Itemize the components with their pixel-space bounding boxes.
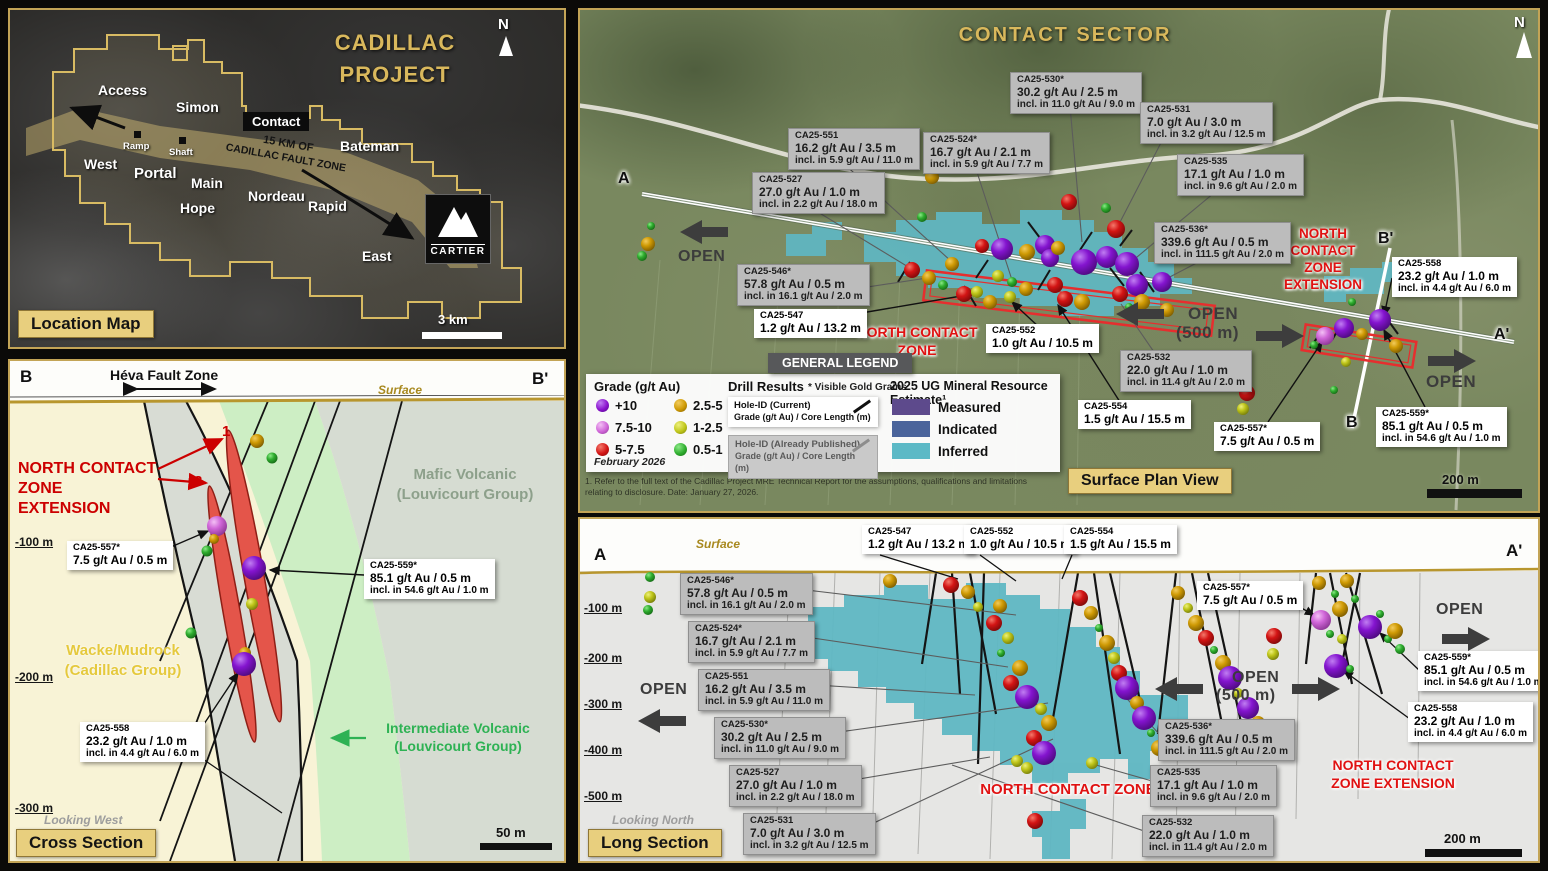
measured-swatch [892,399,930,415]
open-arrow-right [1442,627,1490,651]
grade-label: 7.5-10 [615,420,652,435]
grade-label: +10 [615,398,637,413]
general-legend-panel: Grade (g/t Au) +10 7.5-10 5-7.5 2.5-5 1-… [586,374,1060,472]
plan-scale-bar [1427,489,1522,498]
drill-label-ca25-524: CA25-524*16.7 g/t Au / 2.1 mincl. in 5.9… [923,132,1050,174]
long-label-ca25-557: CA25-557*7.5 g/t Au / 0.5 m [1197,581,1303,610]
long-open-left: OPEN [640,681,687,699]
long-label-ca25-559: CA25-559*85.1 g/t Au / 0.5 mincl. in 54.… [1418,651,1540,691]
location-north-arrow [499,36,513,56]
plan-open-mid1: OPEN [1188,304,1238,324]
cartier-logo-text: CARTIER [431,244,486,257]
open-arrow-right [1428,349,1476,373]
included-interval: incl. in 54.6 g/t Au / 1.0 m [1424,677,1540,688]
long-label-ca25-532: CA25-53222.0 g/t Au / 1.0 mincl. in 11.4… [1142,815,1274,857]
project-title-line1: CADILLAC [310,30,480,56]
open-arrow-mid-right [1292,677,1340,701]
drill-label-ca25-551: CA25-55116.2 g/t Au / 3.5 mincl. in 5.9 … [788,128,920,170]
wacke-line2: (Cadillac Group) [38,661,208,681]
plan-title: CONTACT SECTOR [940,24,1190,47]
drill-label-ca25-546: CA25-546*57.8 g/t Au / 0.5 mincl. in 16.… [737,264,870,306]
grade-swatch [596,399,609,412]
included-interval: incl. in 4.4 g/t Au / 6.0 m [1414,728,1527,739]
grade-interval: 23.2 g/t Au / 1.0 m [86,735,199,748]
grade-item-plus10: +10 [596,398,637,413]
grade-interval: 85.1 g/t Au / 0.5 m [1424,664,1540,677]
lens-number-3: 3 [194,473,202,490]
measured-label: Measured [938,400,1001,415]
long-depth-100: -100 m [584,601,622,615]
grade-interval: 57.8 g/t Au / 0.5 m [744,278,863,291]
grade-item-2-5: 2.5-5 [674,398,723,413]
plan-north-label: N [1514,14,1525,31]
included-interval: incl. in 16.1 g/t Au / 2.0 m [687,600,806,611]
grade-swatch [674,421,687,434]
cross-section-drawing [10,361,564,861]
intermediate-volcanic-label: Intermediate Volcanic (Louvicourt Group) [368,719,548,755]
indicated-label: Indicated [938,422,997,437]
plan-endpoint-b: B [1346,414,1358,432]
drill-label-ca25-531: CA25-5317.0 g/t Au / 3.0 mincl. in 3.2 g… [1140,102,1273,144]
long-label-ca25-527: CA25-52727.0 g/t Au / 1.0 mincl. in 2.2 … [729,765,862,807]
grade-interval: 22.0 g/t Au / 1.0 m [1149,829,1267,842]
sky-band [10,361,564,395]
grade-interval: 339.6 g/t Au / 0.5 m [1165,733,1288,746]
ncze-label-line2: ZONE EXTENSION [18,479,158,519]
plan-endpoint-a: A [618,170,630,188]
surface-plan-panel: CONTACT SECTOR N A A' B' B OPEN OPEN (50… [578,8,1540,513]
mafic-volcanic-label: Mafic Volcanic (Louvicourt Group) [370,465,560,504]
included-interval: incl. in 16.1 g/t Au / 2.0 m [744,291,863,302]
grade-label: 1-2.5 [693,420,723,435]
legend-date: February 2026 [594,456,665,468]
plan-open-mid2: (500 m) [1176,323,1239,343]
included-interval: incl. in 2.2 g/t Au / 18.0 m [736,792,855,803]
indicated-swatch [892,421,930,437]
cross-scale-bar [480,843,552,850]
included-interval: incl. in 4.4 g/t Au / 6.0 m [86,748,199,759]
zone-rapid: Rapid [308,198,347,214]
long-label-ca25-531: CA25-5317.0 g/t Au / 3.0 mincl. in 3.2 g… [743,813,876,855]
intermediate-line2: (Louvicourt Group) [368,737,548,755]
figure-canvas: CADILLAC PROJECT N Access Simon West Ram… [0,0,1548,871]
included-interval: incl. in 11.0 g/t Au / 9.0 m [1017,99,1135,110]
drill-label-ca25-527: CA25-52727.0 g/t Au / 1.0 mincl. in 2.2 … [752,172,885,214]
mafic-volcanic-line1: Mafic Volcanic [370,465,560,485]
zone-access: Access [98,82,147,98]
mafic-volcanic-line2: (Louvicourt Group) [370,485,560,505]
section-endpoint-b: B [20,367,32,387]
long-section-panel: A A' Surface -100 m -200 m -300 m -400 m… [578,517,1540,863]
cross-scale-label: 50 m [496,825,526,840]
long-ncze-line2: ZONE EXTENSION [1318,775,1468,793]
drill-label-ca25-558: CA25-55823.2 g/t Au / 1.0 mincl. in 4.4 … [1392,257,1517,297]
included-interval: incl. in 2.2 g/t Au / 18.0 m [759,199,878,210]
plan-open-left: OPEN [678,248,725,266]
long-open-right: OPEN [1436,601,1483,619]
grade-interval: 27.0 g/t Au / 1.0 m [736,779,855,792]
plan-title-badge: Surface Plan View [1068,468,1232,494]
section-endpoint-b-prime: B' [532,369,548,389]
surface-label: Surface [378,383,422,397]
grade-interval: 7.0 g/t Au / 3.0 m [1147,116,1266,129]
wacke-mudrock-label: Wacke/Mudrock (Cadillac Group) [38,641,208,680]
drill-label-ca25-554: CA25-5541.5 g/t Au / 15.5 m [1078,400,1191,429]
drill-label-ca25-547: CA25-5471.2 g/t Au / 13.2 m [754,309,867,338]
included-interval: incl. in 5.9 g/t Au / 11.0 m [705,696,823,707]
grade-interval: 1.5 g/t Au / 15.5 m [1084,413,1185,426]
zone-simon: Simon [176,99,219,115]
surface-casing-line [10,395,564,397]
long-label-ca25-536: CA25-536*339.6 g/t Au / 0.5 mincl. in 11… [1158,719,1295,761]
grade-interval: 30.2 g/t Au / 2.5 m [721,731,839,744]
included-interval: incl. in 11.4 g/t Au / 2.0 m [1149,842,1267,853]
included-interval: incl. in 111.5 g/t Au / 2.0 m [1165,746,1288,757]
included-interval: incl. in 11.0 g/t Au / 9.0 m [721,744,839,755]
grade-interval: 7.5 g/t Au / 0.5 m [1220,435,1314,448]
depth-100: -100 m [15,535,53,549]
heva-fault-zone-label: Héva Fault Zone [110,367,218,383]
drill-label-ca25-557: CA25-557*7.5 g/t Au / 0.5 m [1214,422,1320,451]
inferred-label: Inferred [938,444,988,459]
included-interval: incl. in 111.5 g/t Au / 2.0 m [1161,249,1284,260]
long-label-ca25-547: CA25-5471.2 g/t Au / 13.2 m [862,525,975,554]
zone-portal: Portal [134,165,177,182]
drill-label-ca25-558-cross: CA25-558 23.2 g/t Au / 1.0 m incl. in 4.… [80,722,205,762]
location-scale-label: 3 km [438,312,468,327]
grade-interval: 1.0 g/t Au / 10.5 m [970,538,1071,551]
cross-section-title-badge: Cross Section [16,829,156,857]
open-arrow-mid-right [1256,324,1304,348]
included-interval: incl. in 11.4 g/t Au / 2.0 m [1127,377,1245,388]
inferred-swatch [892,443,930,459]
grade-item-05-1: 0.5-1 [674,442,723,457]
grade-interval: 339.6 g/t Au / 0.5 m [1161,236,1284,249]
drill-label-ca25-535: CA25-53517.1 g/t Au / 1.0 mincl. in 9.6 … [1177,154,1304,196]
depth-200: -200 m [15,670,53,684]
included-interval: incl. in 9.6 g/t Au / 2.0 m [1157,792,1270,803]
looking-direction: Looking West [44,813,122,827]
legend-published-line2: Grade (g/t Au) / Core Length (m) [735,451,871,474]
grade-interval: 1.2 g/t Au / 13.2 m [760,322,861,335]
long-endpoint-a-prime: A' [1506,541,1522,561]
long-label-ca25-530: CA25-530*30.2 g/t Au / 2.5 mincl. in 11.… [714,717,846,759]
grade-label: 0.5-1 [693,442,723,457]
grade-interval: 1.5 g/t Au / 15.5 m [1070,538,1171,551]
long-label-ca25-546: CA25-546*57.8 g/t Au / 0.5 mincl. in 16.… [680,573,813,615]
long-label-ca25-524: CA25-524*16.7 g/t Au / 2.1 mincl. in 5.9… [688,621,815,663]
legend-published-hole-box: Hole-ID (Already Published) Grade (g/t A… [728,435,878,479]
plan-endpoint-b-prime: B' [1378,230,1393,248]
long-ncze-label: NORTH CONTACT ZONE EXTENSION [1318,757,1468,792]
lens-number-1: 1 [222,423,230,440]
included-interval: incl. in 9.6 g/t Au / 2.0 m [1184,181,1297,192]
long-scale-label: 200 m [1444,831,1481,846]
drill-results-title: Drill Results [728,379,804,394]
included-interval: incl. in 54.6 g/t Au / 1.0 m [1382,433,1501,444]
location-map-panel: CADILLAC PROJECT N Access Simon West Ram… [8,8,566,349]
plan-endpoint-a-prime: A' [1494,326,1509,344]
cross-section-panel: B B' Héva Fault Zone Surface NORTH CONTA… [8,359,566,863]
legend-current-line1: Hole-ID (Current) [734,400,872,412]
grade-legend-title: Grade (g/t Au) [594,379,680,394]
long-open-mid2: (500 m) [1216,687,1276,705]
grade-interval: 30.2 g/t Au / 2.5 m [1017,86,1135,99]
shaft-marker [179,137,186,144]
included-interval: incl. in 3.2 g/t Au / 12.5 m [750,840,869,851]
included-interval: incl. in 5.9 g/t Au / 11.0 m [795,155,913,166]
zone-nordeau: Nordeau [248,188,305,204]
grade-interval: 7.5 g/t Au / 0.5 m [73,554,167,567]
grade-interval: 16.7 g/t Au / 2.1 m [930,146,1043,159]
location-scale-bar [422,332,502,339]
grade-interval: 17.1 g/t Au / 1.0 m [1157,779,1270,792]
drill-label-ca25-557-cross: CA25-557* 7.5 g/t Au / 0.5 m [67,541,173,570]
grade-item-5-7: 5-7.5 [596,442,645,457]
grade-interval: 1.0 g/t Au / 10.5 m [992,337,1093,350]
grade-interval: 16.2 g/t Au / 3.5 m [705,683,823,696]
legend-current-hole-box: Hole-ID (Current) Grade (g/t Au) / Core … [728,397,878,427]
long-looking-direction: Looking North [612,813,694,827]
grade-swatch [596,443,609,456]
drill-label-ca25-552: CA25-5521.0 g/t Au / 10.5 m [986,324,1099,353]
cartier-logo: CARTIER [425,194,491,264]
zone-main: Main [191,175,223,191]
ncze-label-line1: NORTH CONTACT [18,459,158,479]
mre-footnote: 1. Refer to the full text of the Cadilla… [585,476,1053,497]
grade-interval: 7.5 g/t Au / 0.5 m [1203,594,1297,607]
long-label-ca25-535: CA25-53517.1 g/t Au / 1.0 mincl. in 9.6 … [1150,765,1277,807]
drill-label-ca25-532: CA25-53222.0 g/t Au / 1.0 mincl. in 11.4… [1120,350,1252,392]
grade-interval: 22.0 g/t Au / 1.0 m [1127,364,1245,377]
grade-interval: 16.7 g/t Au / 2.1 m [695,635,808,648]
grade-item-7-10: 7.5-10 [596,420,652,435]
plan-ncz-line1: NORTH CONTACT [850,324,984,342]
mre-indicated: Indicated [892,421,997,437]
open-arrow-left [638,709,686,733]
grade-interval: 16.2 g/t Au / 3.5 m [795,142,913,155]
project-title-line2: PROJECT [310,62,480,88]
included-interval: incl. in 5.9 g/t Au / 7.7 m [930,159,1043,170]
intermediate-line1: Intermediate Volcanic [368,719,548,737]
north-label: N [498,16,509,33]
mre-inferred: Inferred [892,443,988,459]
plan-ncze-line4: EXTENSION [1276,277,1370,294]
long-label-ca25-554: CA25-5541.5 g/t Au / 15.5 m [1064,525,1177,554]
long-ncze-line1: NORTH CONTACT [1318,757,1468,775]
grade-interval: 17.1 g/t Au / 1.0 m [1184,168,1297,181]
long-label-ca25-558: CA25-55823.2 g/t Au / 1.0 mincl. in 4.4 … [1408,702,1533,742]
grade-interval: 85.1 g/t Au / 0.5 m [370,572,489,585]
long-section-title-badge: Long Section [588,829,722,857]
long-depth-400: -400 m [584,743,622,757]
zone-hope: Hope [180,200,215,216]
long-depth-200: -200 m [584,651,622,665]
drill-label-ca25-530: CA25-530*30.2 g/t Au / 2.5 mincl. in 11.… [1010,72,1142,114]
plan-scale-label: 200 m [1442,472,1479,487]
grade-interval: 85.1 g/t Au / 0.5 m [1382,420,1501,433]
long-scale-bar [1425,849,1522,857]
long-open-mid1: OPEN [1232,669,1279,687]
grade-interval: 23.2 g/t Au / 1.0 m [1398,270,1511,283]
long-label-ca25-551: CA25-55116.2 g/t Au / 3.5 mincl. in 5.9 … [698,669,830,711]
grade-swatch [674,399,687,412]
plan-open-right: OPEN [1426,372,1476,392]
ramp-marker [134,131,141,138]
included-interval: incl. in 3.2 g/t Au / 12.5 m [1147,129,1266,140]
grade-swatch [674,443,687,456]
zone-east: East [362,248,392,264]
zone-contact-badge: Contact [243,112,309,131]
grade-swatch [596,421,609,434]
location-map-title-badge: Location Map [18,310,154,338]
mre-measured: Measured [892,399,1001,415]
grade-label: 2.5-5 [693,398,723,413]
grade-label: 5-7.5 [615,442,645,457]
cartier-mountain-icon [426,195,488,241]
drill-label-ca25-559-cross: CA25-559* 85.1 g/t Au / 0.5 m incl. in 5… [364,559,495,599]
grade-interval: 57.8 g/t Au / 0.5 m [687,587,806,600]
general-legend-header: GENERAL LEGEND [768,353,912,373]
zone-shaft: Shaft [169,147,193,158]
included-interval: incl. in 5.9 g/t Au / 7.7 m [695,648,808,659]
long-endpoint-a: A [594,545,606,565]
grade-interval: 27.0 g/t Au / 1.0 m [759,186,878,199]
grade-interval: 23.2 g/t Au / 1.0 m [1414,715,1527,728]
plan-north-arrow [1516,32,1532,58]
long-depth-500: -500 m [584,789,622,803]
drill-label-ca25-536: CA25-536*339.6 g/t Au / 0.5 mincl. in 11… [1154,222,1291,264]
location-map-overlay [10,10,564,347]
wacke-line1: Wacke/Mudrock [38,641,208,661]
open-arrow-left [680,220,728,244]
grade-interval: 1.2 g/t Au / 13.2 m [868,538,969,551]
grade-item-1-2: 1-2.5 [674,420,723,435]
zone-ramp: Ramp [123,141,149,152]
legend-current-line2: Grade (g/t Au) / Core Length (m) [734,412,872,424]
included-interval: incl. in 4.4 g/t Au / 6.0 m [1398,283,1511,294]
long-depth-300: -300 m [584,697,622,711]
grade-interval: 7.0 g/t Au / 3.0 m [750,827,869,840]
zone-west: West [84,156,117,172]
drill-label-ca25-559: CA25-559*85.1 g/t Au / 0.5 mincl. in 54.… [1376,407,1507,447]
long-surface-label: Surface [696,537,740,551]
ncze-label: NORTH CONTACT ZONE EXTENSION [18,459,158,519]
long-label-ca25-552: CA25-5521.0 g/t Au / 10.5 m [964,525,1077,554]
included-interval: incl. in 54.6 g/t Au / 1.0 m [370,585,489,596]
